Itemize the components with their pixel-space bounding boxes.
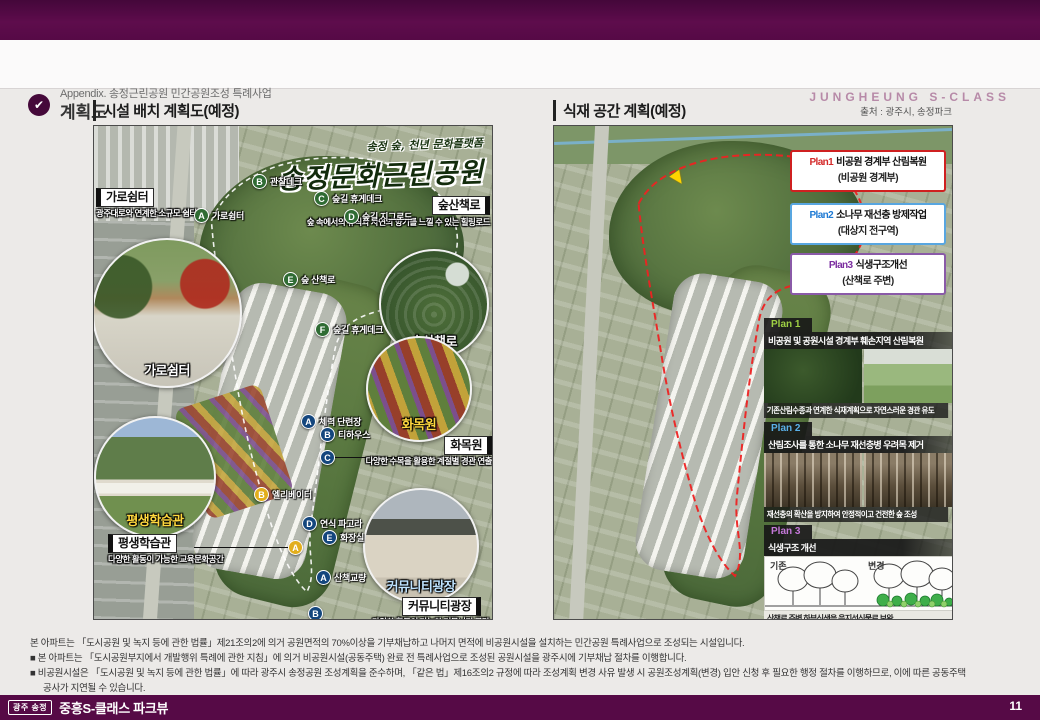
label-sup-sanchaekro: 숲산책로	[432, 196, 490, 215]
marker-letter: C	[314, 191, 329, 206]
card-plan2-caption: 재선충의 확산을 방지하여 안정적이고 건전한 숲 조성	[764, 507, 948, 522]
marker-letter: D	[344, 209, 359, 224]
card-plan3-title: 식생구조 개선	[764, 539, 953, 556]
card-plan3: Plan 3 식생구조 개선 기존 변경	[764, 521, 953, 620]
presentation-slide: ✔ Appendix. 송정근린공원 민간공원조성 특례사업 계획도 JUNGH…	[0, 0, 1040, 720]
photo-hwamokwon: 화목원	[366, 336, 472, 442]
page-number: 11	[1009, 699, 1022, 713]
marker-label: 산책교량	[334, 571, 366, 584]
photo-caption: 평생학습관	[96, 510, 214, 529]
note-line: 본 아파트는 「도시공원 및 녹지 등에 관한 법률」제21조의2에 의거 공원…	[30, 636, 1030, 651]
marker-label: 숲길 휴게데크	[332, 192, 382, 205]
plan2-tag: Plan2	[809, 210, 833, 221]
map-marker-green: F 숲길 휴게데크	[315, 322, 383, 337]
photo-learning-center: 평생학습관	[94, 416, 216, 538]
card-plan2-title: 산림조사를 통한 소나무 재선충병 우려목 제거	[764, 436, 953, 453]
right-section-title: 식재 공간 계획(예정)	[553, 100, 686, 121]
facility-layout-map: 송정 숲, 천년 문화플랫폼 송정문화근린공원 가로쉼터 광주대로와 연계한 소…	[93, 125, 493, 620]
marker-letter: B	[320, 427, 335, 442]
map-marker-blue: D 연식 파고라	[302, 516, 362, 531]
map-marker-blue: B	[308, 606, 326, 620]
legal-notes: 본 아파트는 「도시공원 및 녹지 등에 관한 법률」제21조의2에 의거 공원…	[30, 636, 1030, 696]
card-plan2-photos	[764, 453, 953, 507]
marker-letter: A	[301, 414, 316, 429]
legend-plan2: Plan2소나무 재선충 방제작업 (대상지 전구역)	[790, 203, 946, 245]
check-icon: ✔	[28, 94, 50, 116]
plan2-text: 소나무 재선충 방제작업	[836, 210, 926, 221]
note-line: 공사가 지연될 수 있습니다.	[30, 681, 1030, 696]
sublabel-hwamokwon: 다양한 수목을 활용한 계절별 경관 연출	[366, 455, 492, 467]
marker-letter: D	[302, 516, 317, 531]
plan1-tag: Plan1	[809, 157, 833, 168]
marker-label: 가로쉼터	[212, 209, 244, 222]
card-plan1-title: 비공원 및 공원시설 경계부 훼손지역 산림복원	[764, 332, 953, 349]
marker-letter: A	[316, 570, 331, 585]
card-plan1-tab: Plan 1	[764, 318, 812, 332]
note-line: ■ 본 아파트는 「도시공원부지에서 개발행위 특례에 관한 지침」에 의거 비…	[30, 651, 1030, 666]
marker-letter: A	[194, 208, 209, 223]
card-plan1: Plan 1 비공원 및 공원시설 경계부 훼손지역 산림복원 기존산림수종과 …	[764, 314, 953, 418]
footer-brand: 중흥S-클래스 파크뷰	[59, 698, 168, 717]
label-pyeongsaeng: 평생학습관	[108, 534, 177, 553]
vegetation-diagram: 기존 변경	[764, 556, 953, 611]
photo-pine-forest	[764, 453, 862, 507]
marker-label: 숲 산책로	[301, 273, 335, 286]
marker-letter: C	[320, 450, 335, 465]
footer-bar: 광주 송정 중흥S-클래스 파크뷰 11	[0, 695, 1040, 720]
marker-label: 연식 파고라	[320, 517, 362, 530]
card-plan3-tab: Plan 3	[764, 525, 812, 539]
footer-badge: 광주 송정	[8, 700, 52, 715]
tree-diagram-drawing	[765, 557, 953, 610]
label-hwamokwon: 화목원	[444, 436, 492, 455]
marker-letter: B	[308, 606, 323, 620]
card-plan2-tab: Plan 2	[764, 422, 812, 436]
photo-community-plaza: 커뮤니티광장	[363, 488, 479, 604]
card-plan2: Plan 2 산림조사를 통한 소나무 재선충병 우려목 제거 재선충의 확산을…	[764, 418, 953, 522]
top-purple-band	[0, 0, 1040, 40]
legend-plan3: Plan3식생구조개선 (산책로 주변)	[790, 253, 946, 295]
label-community: 커뮤니티광장	[402, 597, 481, 616]
photo-pine-forest	[864, 453, 953, 507]
diagram-before-label: 기존	[770, 559, 787, 572]
connector-line	[194, 547, 290, 548]
marker-label: 숲길 지그로드	[362, 210, 412, 223]
card-plan1-caption: 기존산림수종과 연계한 식재계획으로 자연스러운 경관 유도	[764, 403, 948, 418]
header-strip: ✔ Appendix. 송정근린공원 민간공원조성 특례사업 계획도 JUNGH…	[0, 40, 1040, 89]
plan3-text: 식생구조개선	[856, 260, 908, 271]
sublabel-community: 다양한 활동이 가능한 커뮤니티 공간	[372, 616, 489, 620]
plan2-subtext: (대상지 전구역)	[794, 224, 942, 240]
plan3-tag: Plan3	[829, 260, 853, 271]
map-marker-green: C 숲길 휴게데크	[314, 191, 382, 206]
marker-letter: B	[254, 487, 269, 502]
legend-plan1: Plan1비공원 경계부 산림복원 (비공원 경계부)	[790, 150, 946, 192]
map-marker-yellow: B 엘리베이터	[254, 487, 312, 502]
photo-caption: 커뮤니티광장	[365, 576, 477, 595]
park-calligraphy-title: 송정 숲, 천년 문화플랫폼 송정문화근린공원	[276, 134, 485, 196]
source-note: 출처 : 광주시, 송정파크	[860, 104, 952, 118]
diagram-after-label: 변경	[868, 559, 885, 572]
marker-label: 엘리베이터	[272, 488, 312, 501]
marker-letter: A	[288, 540, 303, 555]
sublabel-pyeongsaeng: 다양한 활동이 가능한 교육문화공간	[108, 553, 223, 565]
plan3-subtext: (산책로 주변)	[794, 274, 942, 290]
map-marker-blue: E 화장실	[322, 530, 364, 545]
map-marker-green: E 숲 산책로	[283, 272, 335, 287]
plan1-subtext: (비공원 경계부)	[794, 171, 942, 187]
card-plan3-caption: 산책로 주변 하부식생을 음지성식물로 보완	[764, 611, 953, 620]
marker-label: 화장실	[340, 531, 364, 544]
map-marker-blue: C	[320, 450, 338, 465]
left-section-title: 시설 배치 계획도(예정)	[93, 100, 239, 121]
marker-label: 관찰데크	[270, 175, 302, 188]
photo-shrub-light	[864, 349, 953, 403]
marker-letter: B	[252, 174, 267, 189]
map-marker-blue: B 티하우스	[320, 427, 370, 442]
map-marker-yellow: A	[288, 540, 306, 555]
marker-letter: F	[315, 322, 330, 337]
planting-plan-map: Plan1비공원 경계부 산림복원 (비공원 경계부) Plan2소나무 재선충…	[553, 125, 953, 620]
park-name: 송정문화근린공원	[277, 150, 485, 196]
sublabel-garo-shimteo: 광주대로와 연계한 소규모 쉼터	[96, 207, 197, 219]
map-marker-green: D 숲길 지그로드	[344, 209, 412, 224]
marker-label: 숲길 휴게데크	[333, 323, 383, 336]
plan1-text: 비공원 경계부 산림복원	[836, 157, 926, 168]
photo-garo-shimteo: 가로쉼터	[93, 238, 242, 388]
photo-shrub-dark	[764, 349, 862, 403]
map-marker-green: B 관찰데크	[252, 174, 302, 189]
card-plan1-photos	[764, 349, 953, 403]
marker-letter: E	[322, 530, 337, 545]
photo-caption: 화목원	[368, 414, 470, 433]
marker-label: 티하우스	[338, 428, 370, 441]
note-line: ■ 비공원시설은 「도시공원 및 녹지 등에 관한 법률」에 따라 광주시 송정…	[30, 666, 1030, 681]
map-marker-blue: A 산책교량	[316, 570, 366, 585]
photo-caption: 가로쉼터	[94, 360, 240, 379]
marker-letter: E	[283, 272, 298, 287]
brand-logotype: JUNGHEUNG S-CLASS	[809, 90, 1010, 104]
label-garo-shimteo: 가로쉼터	[96, 188, 154, 207]
map-marker-green: A 가로쉼터	[194, 208, 244, 223]
